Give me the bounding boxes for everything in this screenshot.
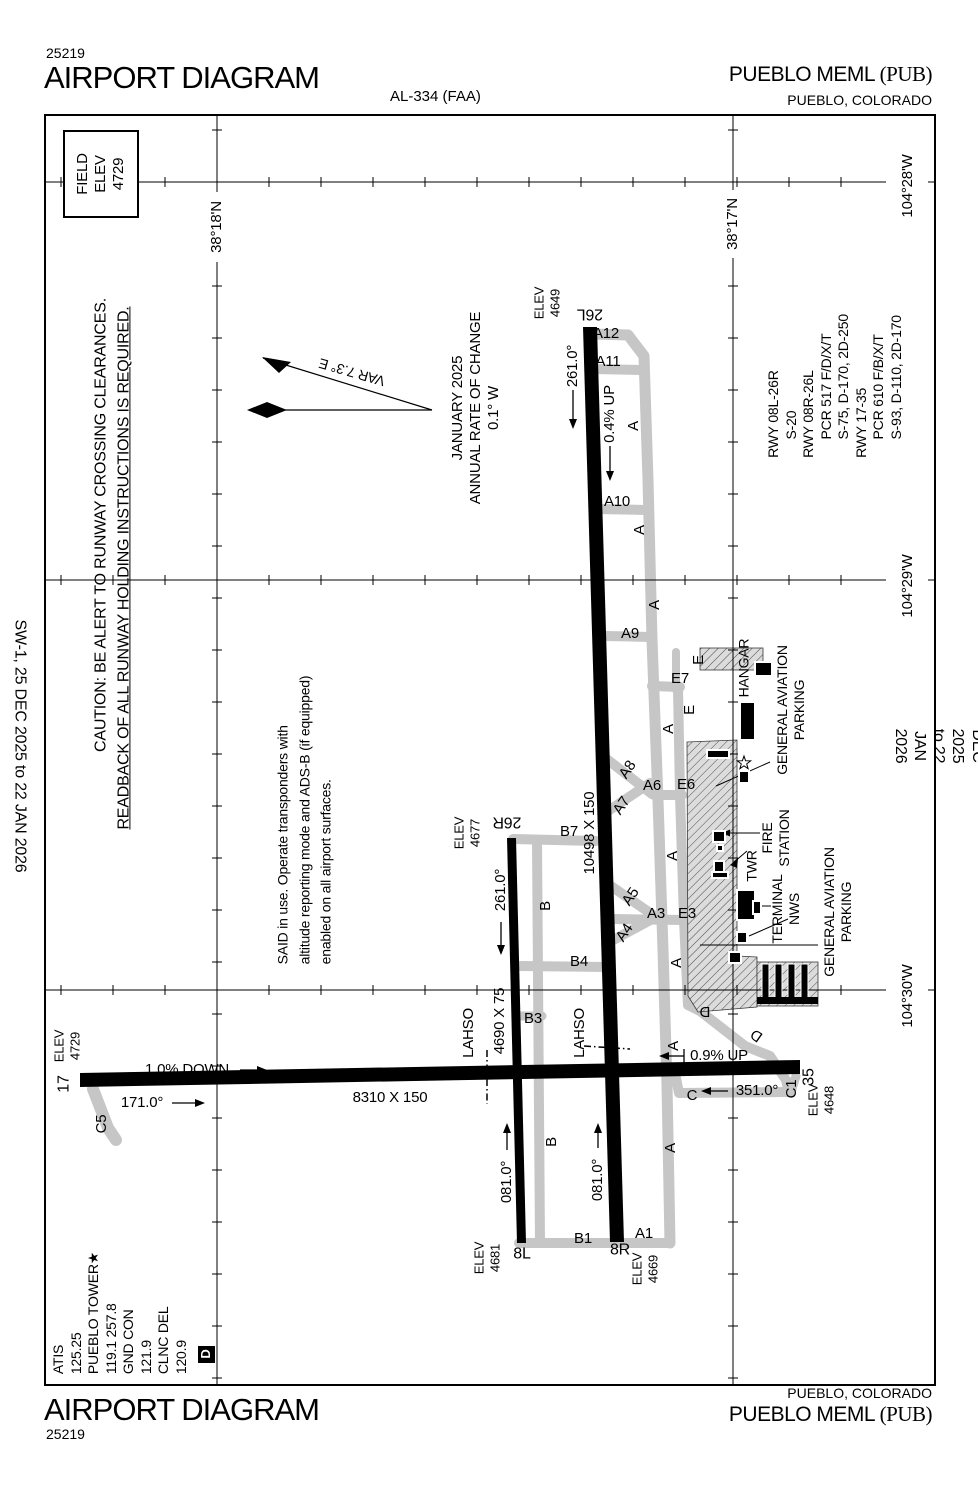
runway-08r-26l-dimensions: 10498 X 150	[581, 792, 599, 875]
magnetic-north-barb	[262, 357, 291, 373]
lahso-label-2: LAHSO	[571, 1008, 589, 1058]
taxiway-label-b4: B4	[570, 953, 588, 971]
latitude-label-38-18n: 38°18'N	[208, 199, 226, 255]
runway-declared-data: RWY 08L-26R S-20 RWY 08R-26L PCR 517 F/D…	[765, 314, 905, 458]
runway-slope-17-35-down: 1.0% DOWN	[145, 1061, 229, 1079]
taxiway-label-b3: B3	[524, 1010, 542, 1028]
runway-08r-26l-surface	[583, 327, 624, 1242]
d-atis-letter: D	[198, 1349, 214, 1358]
taxiway-label-b: B	[537, 901, 555, 911]
airport-name-footer: PUEBLO MEML (PUB)	[560, 1402, 932, 1427]
airport-diagram-page: 25219 AIRPORT DIAGRAM AL-334 (FAA) PUEBL…	[0, 0, 978, 1500]
taxiway-label-c1: C1	[783, 1080, 801, 1099]
caution-note-line1: CAUTION: BE ALERT TO RUNWAY CROSSING CLE…	[91, 298, 110, 752]
tower-label: TWR	[744, 850, 761, 881]
caution-note-line2: READBACK OF ALL RUNWAY HOLDING INSTRUCTI…	[114, 306, 133, 829]
runway-heading-26l: 261.0°	[564, 345, 582, 387]
fire-station-building	[713, 831, 725, 842]
chart-number-bottom: 25219	[46, 1426, 85, 1442]
nws-building	[737, 932, 747, 943]
airport-name-header: PUEBLO MEML (PUB)	[560, 62, 932, 87]
longitude-label-104-29w: 104°29'W	[899, 552, 917, 619]
airport-ident: (PUB)	[880, 62, 932, 86]
effective-dates-left: SW-1, 25 DEC 2025 to 22 JAN 2026	[10, 619, 29, 872]
hangar-building	[755, 662, 772, 676]
runway-heading-26r: 261.0°	[492, 869, 510, 911]
longitude-label-104-30w: 104°30'W	[899, 962, 917, 1029]
airport-name: PUEBLO MEML	[729, 63, 880, 86]
general-aviation-parking-label-south: GENERAL AVIATION PARKING	[821, 847, 855, 977]
chart-id: AL-334 (FAA)	[390, 88, 481, 105]
taxiway-label-c5: C5	[93, 1115, 111, 1134]
d-atis-symbol: D	[198, 1346, 215, 1363]
airport-city-footer: PUEBLO, COLORADO	[560, 1385, 932, 1401]
effective-dates-right: SW-1, 25 DEC 2025 to 22 JAN 2026	[891, 729, 978, 764]
taxiway-label-a: A	[665, 1041, 683, 1051]
taxiway-label-a: A	[646, 600, 664, 610]
taxiway-label-e: E	[681, 705, 699, 715]
taxiway-label-a6: A6	[643, 777, 661, 795]
threshold-elevation-8l: ELEV 4681	[471, 1242, 502, 1274]
airport-city-header: PUEBLO, COLORADO	[560, 92, 932, 108]
taxiway-label-a: A	[664, 851, 682, 861]
taxiway-label-e3: E3	[678, 905, 696, 923]
threshold-elevation-17: ELEV 4729	[51, 1030, 82, 1062]
taxiway-label-a11: A11	[596, 353, 621, 371]
runway-end-number-17: 17	[54, 1075, 73, 1092]
taxiway-label-b7: B7	[560, 823, 578, 841]
taxiway-label-b: B	[543, 1137, 561, 1147]
threshold-elevation-26l: ELEV 4649	[531, 287, 562, 319]
runway-heading-17: 171.0°	[121, 1094, 163, 1112]
runway-heading-35: 351.0°	[736, 1082, 778, 1100]
annual-rate-of-change-note: JANUARY 2025 ANNUAL RATE OF CHANGE 0.1° …	[449, 312, 503, 505]
taxiway-label-a: A	[662, 1143, 680, 1153]
taxiway-label-a: A	[631, 525, 649, 535]
taxiway-label-c: C	[687, 1087, 698, 1105]
runway-slope-08r-26l: 0.4% UP	[601, 385, 619, 443]
hangar-building	[740, 702, 755, 740]
page-title-footer: AIRPORT DIAGRAM	[44, 1392, 319, 1428]
airport-name: PUEBLO MEML	[729, 1403, 880, 1426]
runway-slope-17-35-up: 0.9% UP	[690, 1047, 748, 1065]
threshold-elevation-8r: ELEV 4669	[629, 1253, 660, 1285]
communications-frequencies: ATIS 125.25 PUEBLO TOWER★ 119.1 257.8 GN…	[50, 1252, 190, 1374]
taxiway-label-e7: E7	[671, 670, 689, 688]
taxiway-label-b1: B1	[574, 1230, 592, 1248]
field-elevation-text: FIELD ELEV 4729	[74, 153, 128, 195]
taxiway-label-e: E	[690, 655, 708, 665]
general-aviation-parking-label-north: GENERAL AVIATION PARKING	[774, 645, 808, 775]
said-note: SAID in use. Operate transponders with a…	[272, 676, 337, 965]
taxiway-label-a3: A3	[647, 905, 665, 923]
hangar-label: HANGAR	[736, 639, 753, 698]
taxiway-label-e6: E6	[677, 776, 695, 794]
runway-end-number-26l: 26L	[577, 304, 603, 323]
latitude-label-38-17n: 38°17'N	[724, 196, 742, 252]
taxiway-label-a12: A12	[593, 325, 619, 343]
runway-heading-8r: 081.0°	[589, 1159, 607, 1201]
taxiway-label-a1: A1	[635, 1225, 653, 1243]
threshold-elevation-26r: ELEV 4677	[451, 817, 482, 849]
airport-ident: (PUB)	[880, 1402, 932, 1426]
page-title: AIRPORT DIAGRAM	[44, 60, 319, 96]
longitude-label-104-28w: 104°28'W	[899, 152, 917, 219]
runway-08l-26r-dimensions: 4690 X 75	[491, 988, 509, 1055]
taxiway-label-a10: A10	[604, 493, 630, 511]
airport-beacon-icon	[737, 756, 750, 769]
fire-station-label: FIRE STATION	[759, 809, 793, 866]
threshold-elevation-35: ELEV 4648	[805, 1084, 836, 1116]
taxiway-label-d: D	[700, 1002, 711, 1020]
runway-heading-8l: 081.0°	[498, 1161, 516, 1203]
runway-end-number-8l: 8L	[513, 1244, 530, 1263]
terminal-nws-label: TERMINAL NWS	[769, 874, 803, 943]
hangar-apron	[700, 648, 763, 670]
field-elevation-box: FIELD ELEV 4729	[63, 130, 139, 218]
chart-number-top: 25219	[46, 45, 85, 61]
taxiway-label-a9: A9	[621, 625, 639, 643]
taxiway-label-a: A	[625, 421, 643, 431]
lahso-label-1: LAHSO	[460, 1008, 478, 1058]
runway-17-35-dimensions: 8310 X 150	[353, 1089, 428, 1107]
taxiway-label-a: A	[668, 958, 686, 968]
runway-end-number-8r: 8R	[610, 1240, 630, 1259]
runway-end-number-26r: 26R	[493, 812, 522, 831]
taxiway-label-a: A	[660, 724, 678, 734]
